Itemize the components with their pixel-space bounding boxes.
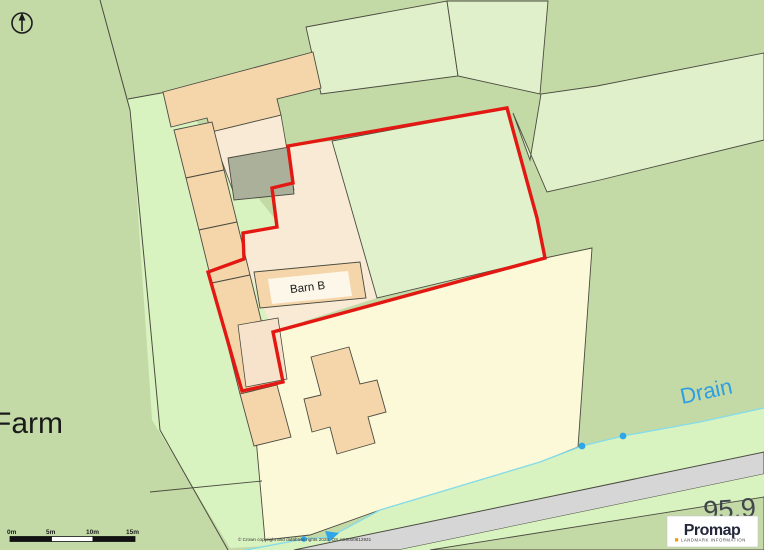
scale-tick-0: 0m xyxy=(7,529,17,536)
scale-tick-10: 10m xyxy=(86,529,99,536)
map-viewport: Barn B Farm Drain 95.9 0m 5m 10m 15m © C… xyxy=(0,0,764,550)
copyright-text: © Crown copyright and database rights 20… xyxy=(238,536,372,542)
scale-tick-5: 5m xyxy=(46,529,56,536)
map-canvas[interactable]: Barn B Farm Drain 95.9 0m 5m 10m 15m © C… xyxy=(0,0,764,550)
promap-logo: Promap LANDMARK INFORMATION xyxy=(667,516,758,547)
landmark-tagline: LANDMARK INFORMATION xyxy=(681,538,746,543)
promap-wordmark: Promap xyxy=(684,522,741,539)
drain-vertex-dot xyxy=(620,433,627,440)
scale-tick-15: 15m xyxy=(126,529,139,536)
yard-rect xyxy=(238,318,287,387)
farm-label: Farm xyxy=(0,407,63,440)
drain-vertex-dot xyxy=(579,443,586,450)
landmark-bullet-icon xyxy=(675,538,678,541)
